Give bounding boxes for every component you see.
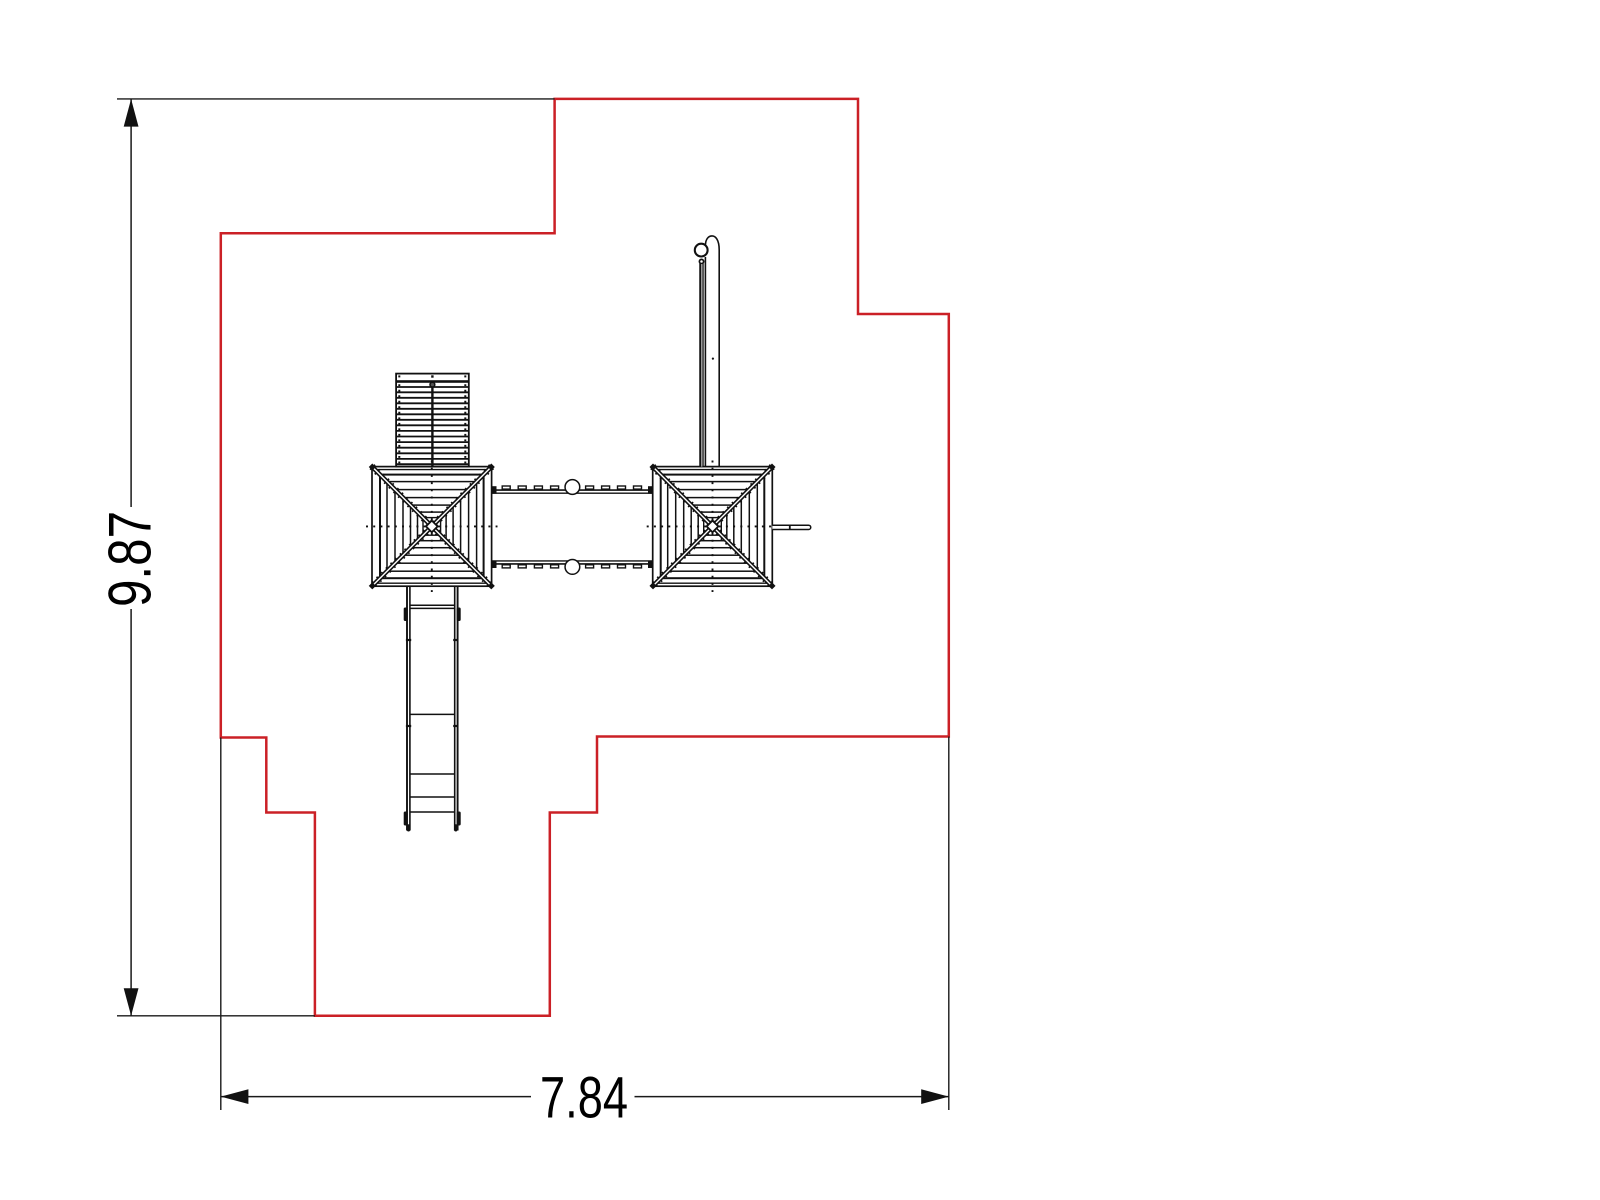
- svg-text:9.87: 9.87: [97, 511, 164, 607]
- svg-text:7.84: 7.84: [540, 1066, 628, 1131]
